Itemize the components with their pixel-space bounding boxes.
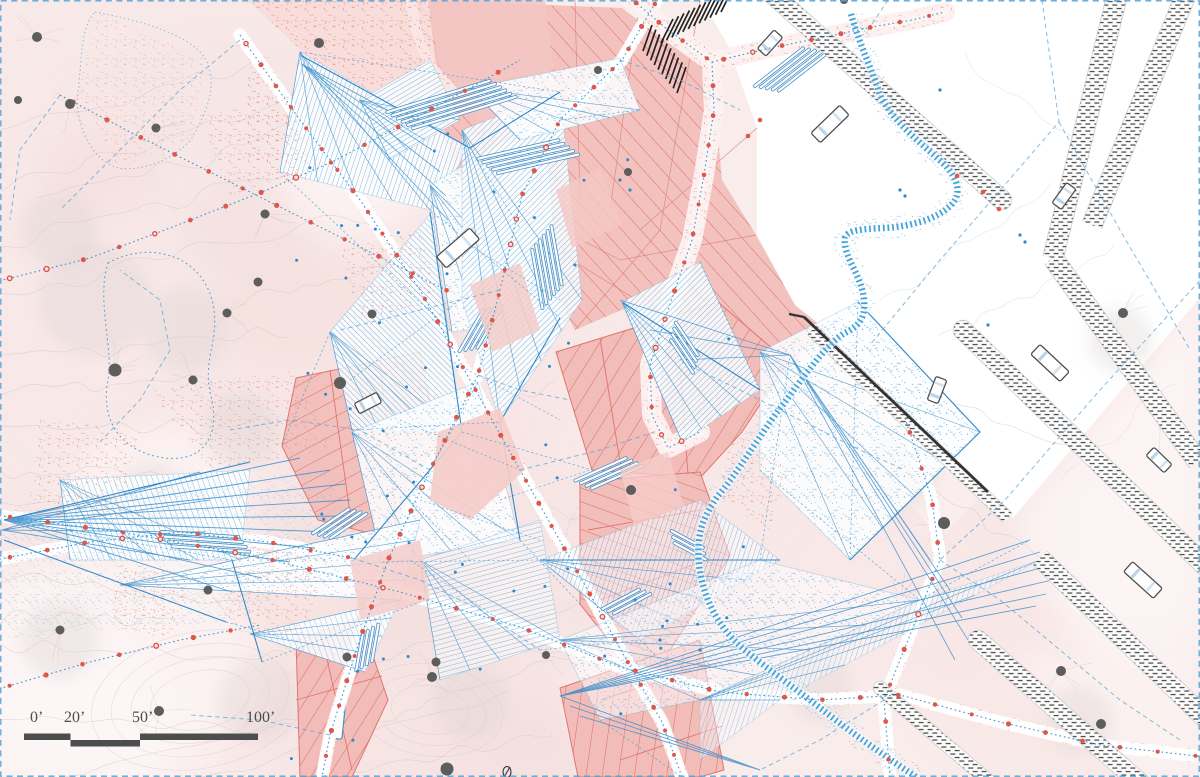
svg-text:0’: 0’ [30, 709, 43, 726]
svg-text:20’: 20’ [64, 709, 85, 726]
svg-text:100’: 100’ [246, 709, 275, 726]
svg-text:50’: 50’ [132, 709, 153, 726]
